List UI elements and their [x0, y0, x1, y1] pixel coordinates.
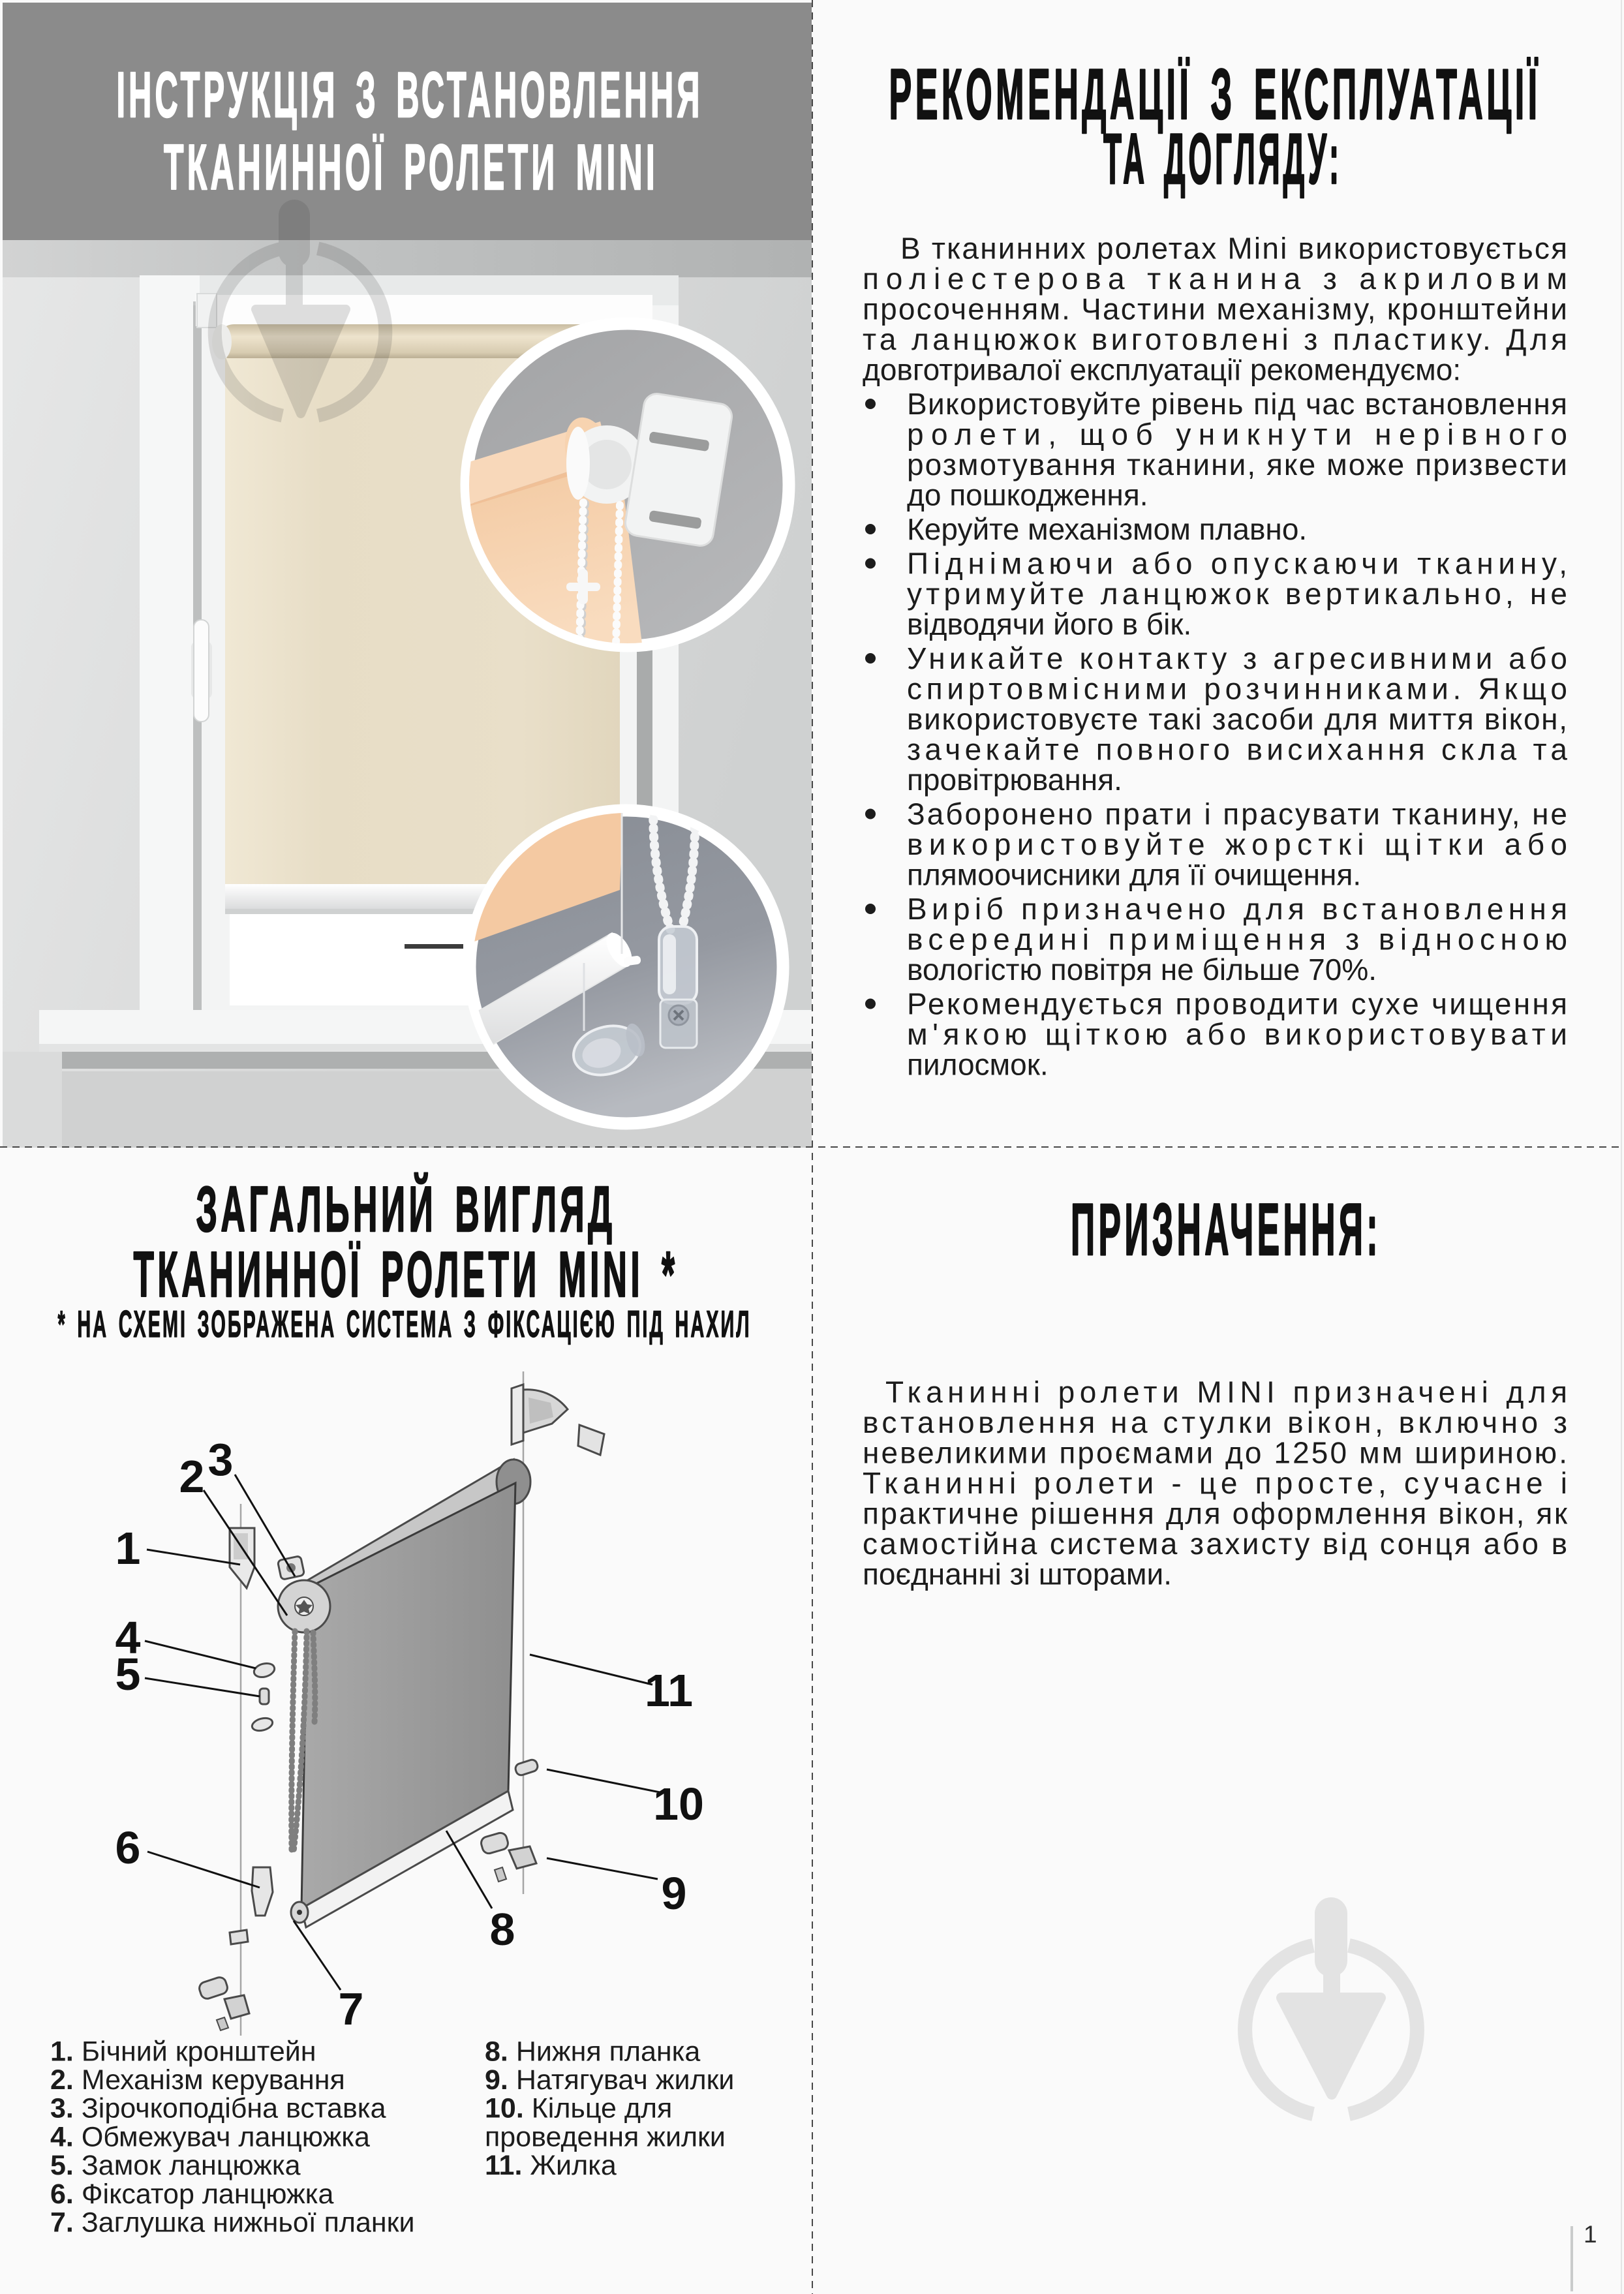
svg-text:поєднанні зі шторами.: поєднанні зі шторами. [863, 1557, 1172, 1591]
svg-text:5: 5 [115, 1649, 141, 1700]
svg-text:самостійна система захисту від: самостійна система захисту від сонця або… [863, 1527, 1567, 1561]
svg-text:* НА СХЕМІ ЗОБРАЖЕНА СИСТЕМА З: * НА СХЕМІ ЗОБРАЖЕНА СИСТЕМА З ФІКСАЦІЄЮ… [58, 1304, 752, 1345]
svg-text:Рекомендується проводити сухе: Рекомендується проводити сухе чищення [907, 987, 1567, 1021]
svg-text:Керуйте механізмом плавно.: Керуйте механізмом плавно. [907, 512, 1307, 546]
svg-text:10. Кільце для: 10. Кільце для [485, 2093, 672, 2124]
svg-text:відводячи його в бік.: відводячи його в бік. [907, 607, 1191, 641]
svg-text:зачекайте повного висихання ск: зачекайте повного висихання скла та [907, 733, 1567, 767]
svg-text:та ланцюжок виготовлені з плас: та ланцюжок виготовлені з пластику. Для [863, 322, 1567, 356]
svg-text:2: 2 [179, 1451, 205, 1502]
svg-text:11. Жилка: 11. Жилка [485, 2150, 617, 2181]
svg-text:невеликими проємами до 1250 мм: невеликими проємами до 1250 мм шириною. [863, 1436, 1567, 1470]
svg-text:Піднімаючи або опускаючи ткани: Піднімаючи або опускаючи тканину, [907, 547, 1567, 581]
svg-text:8: 8 [490, 1904, 515, 1955]
svg-text:просоченням. Частини механізму: просоченням. Частини механізму, кронштей… [863, 292, 1567, 326]
svg-text:м'якою щіткою або використовув: м'якою щіткою або використовувати [907, 1017, 1567, 1051]
svg-text:ТКАНИННОЇ РОЛЕТИ MINI *: ТКАНИННОЇ РОЛЕТИ MINI * [134, 1238, 679, 1310]
svg-text:до пошкодження.: до пошкодження. [907, 478, 1148, 512]
svg-text:плямоочисники для її очищення.: плямоочисники для її очищення. [907, 858, 1361, 892]
svg-text:Використовуйте рівень під час: Використовуйте рівень під час встановлен… [907, 387, 1567, 421]
svg-text:7. Заглушка нижньої планки: 7. Заглушка нижньої планки [50, 2207, 415, 2239]
svg-text:9. Натягувач жилки: 9. Натягувач жилки [485, 2064, 734, 2096]
svg-text:Виріб призначено для встановле: Виріб призначено для встановлення [907, 892, 1567, 926]
svg-text:Тканинні ролети MINI призначен: Тканинні ролети MINI призначені для [885, 1375, 1567, 1409]
svg-text:6: 6 [115, 1822, 141, 1873]
svg-text:1. Бічний кронштейн: 1. Бічний кронштейн [50, 2036, 316, 2067]
svg-text:2. Механізм керування: 2. Механізм керування [50, 2064, 345, 2096]
svg-text:поліестерова тканина з акрилов: поліестерова тканина з акриловим [863, 262, 1567, 296]
svg-text:встановлення на стулки вікон,: встановлення на стулки вікон, включно з [863, 1405, 1567, 1439]
svg-text:Заборонено прати і прасувати т: Заборонено прати і прасувати тканину, не [907, 797, 1567, 831]
svg-text:4. Обмежувач ланцюжка: 4. Обмежувач ланцюжка [50, 2121, 370, 2152]
svg-text:пилосмок.: пилосмок. [907, 1048, 1049, 1082]
svg-text:В тканинних ролетах Mini викор: В тканинних ролетах Mini використовуєтьс… [900, 232, 1567, 266]
svg-text:ролети, щоб уникнути нерівного: ролети, щоб уникнути нерівного [907, 418, 1567, 451]
svg-text:всередині приміщення з відносн: всередині приміщення з відносною [907, 923, 1567, 956]
svg-text:Уникайте контакту з агресивним: Уникайте контакту з агресивними або [907, 641, 1567, 675]
svg-text:утримуйте ланцюжок вертикально: утримуйте ланцюжок вертикально, не [907, 577, 1567, 611]
svg-text:11: 11 [645, 1665, 693, 1716]
svg-text:6. Фіксатор ланцюжка: 6. Фіксатор ланцюжка [50, 2179, 333, 2210]
svg-text:вологістю повітря не більше 70: вологістю повітря не більше 70%. [907, 953, 1377, 986]
svg-text:ЗАГАЛЬНИЙ ВИГЛЯД: ЗАГАЛЬНИЙ ВИГЛЯД [196, 1173, 616, 1245]
svg-text:9: 9 [662, 1868, 687, 1919]
svg-text:10: 10 [653, 1779, 704, 1829]
svg-text:5. Замок ланцюжка: 5. Замок ланцюжка [50, 2150, 301, 2181]
svg-text:1: 1 [115, 1523, 141, 1574]
svg-text:практичне рішення для оформлен: практичне рішення для оформлення вікон, … [863, 1497, 1568, 1531]
svg-text:8. Нижня планка: 8. Нижня планка [485, 2036, 700, 2067]
svg-text:розмотування тканини, яке може: розмотування тканини, яке може призвести [907, 448, 1567, 482]
svg-text:3: 3 [208, 1434, 234, 1485]
svg-text:ТА ДОГЛЯДУ:: ТА ДОГЛЯДУ: [1103, 119, 1342, 199]
svg-text:ПРИЗНАЧЕННЯ:: ПРИЗНАЧЕННЯ: [1071, 1188, 1381, 1270]
svg-text:Тканинні ролети - це просте, с: Тканинні ролети - це просте, сучасне і [863, 1466, 1567, 1500]
svg-text:3. Зірочкоподібна вставка: 3. Зірочкоподібна вставка [50, 2093, 386, 2124]
svg-text:використовуєте такі засоби для: використовуєте такі засоби для миття вік… [907, 702, 1567, 736]
svg-text:1: 1 [1584, 2221, 1597, 2248]
svg-text:проведення жилки: проведення жилки [485, 2121, 726, 2152]
svg-text:довготривалої експлуатації рек: довготривалої експлуатації рекомендуємо: [863, 353, 1461, 387]
svg-text:провітрювання.: провітрювання. [907, 763, 1122, 797]
svg-text:спиртовмісними розчинниками. Я: спиртовмісними розчинниками. Якщо [907, 672, 1567, 706]
svg-text:використовуйте жорсткі щітки а: використовуйте жорсткі щітки або [907, 827, 1567, 861]
